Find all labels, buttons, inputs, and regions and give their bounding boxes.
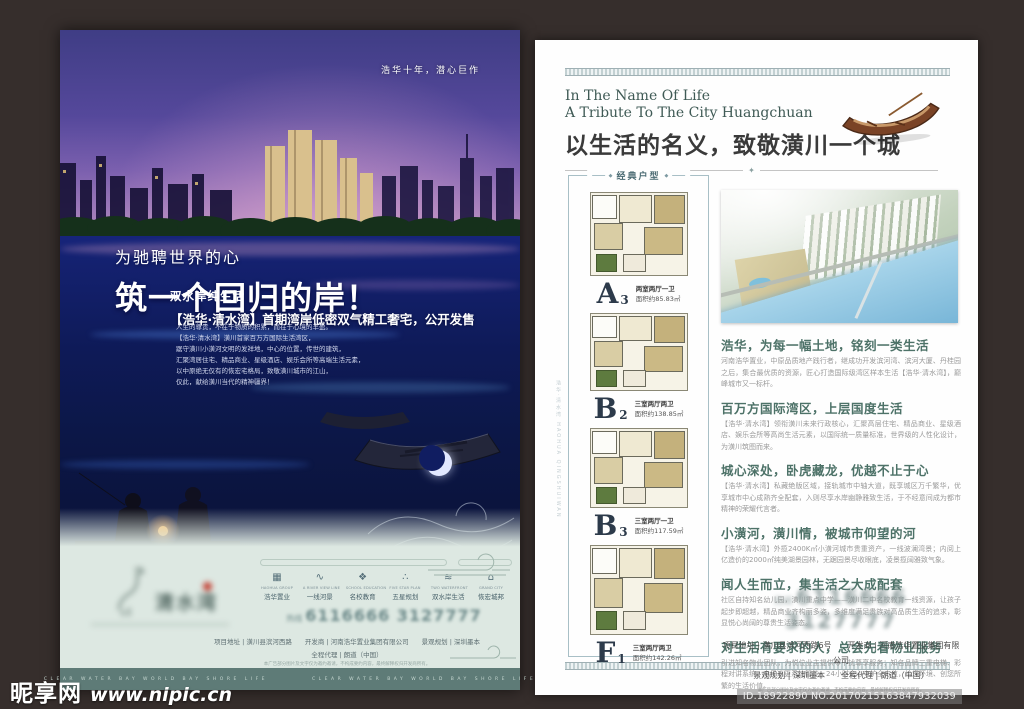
- diamond-icon: ◆: [665, 173, 669, 179]
- plan-letter-sub: 2: [619, 408, 627, 422]
- feature-label-en: GRAND CITY: [474, 585, 508, 590]
- section-heading: 浩华，为每一幅土地，铭刻一类生活: [721, 335, 961, 354]
- plan-room: [644, 462, 682, 489]
- diamond-icon: ◆: [609, 173, 613, 179]
- poster-slogan: 双水岸纯生活: [170, 288, 475, 304]
- plan-room: [623, 611, 646, 630]
- plan-area: 面积约117.59㎡: [635, 527, 684, 535]
- poster-hotline: 热线6116666 3127777: [258, 606, 510, 625]
- poster-left: 浩华十年，潜心巨作 为驰聘世界的心 筑一个回归的岸！ 双水岸纯生活 【浩华·清水…: [60, 30, 520, 690]
- contact-info: 项目地址 | 潢川县滨河西路6号 开发商 | 河南浩华置业集团有限公司 景观规划…: [721, 638, 961, 683]
- section-heading: 城心深处，卧虎藏龙，优越不止于心: [721, 460, 961, 479]
- contact-line: 景观规划 | 深圳墨本 全程代理 | 朗道（中国）: [721, 668, 961, 683]
- plan-meta: 三室两厅一卫 面积约117.59㎡: [635, 516, 684, 537]
- floorplan-drawing: [590, 428, 688, 508]
- plan-letter-sub: 1: [617, 652, 625, 666]
- feature-label-cn: 名校教育: [344, 591, 382, 601]
- plan-room: [644, 583, 682, 613]
- plan-room: [594, 578, 623, 608]
- feature-label-en: TWO WATERFRONT: [431, 585, 465, 590]
- poster-body-text: 人生的尊贵，不在于物质的积累，而在于心境的丰盈。 【浩华·清水湾】潢川首家百万方…: [176, 322, 365, 388]
- crescent-moon: [426, 450, 452, 476]
- floorplan-drawing: [590, 192, 688, 276]
- floorplan-list: A 3 两室两厅一卫 面积约85.83㎡: [569, 176, 708, 672]
- page-hotline: 热线6116666 3127777: [721, 585, 961, 633]
- plan-room: [594, 223, 623, 251]
- plan-room: [654, 195, 685, 225]
- plan-letter-sub: 3: [619, 525, 627, 539]
- plan-room: [592, 195, 617, 220]
- section: 小潢河，潢川情，被城市仰望的河 【浩华·清水湾】外揽2400K㎡小潢河城市贵重资…: [721, 523, 961, 567]
- decorative-border-top: [565, 68, 950, 76]
- stars-icon: ∴: [386, 572, 424, 584]
- feature-label-en: FIVE STAR PLAN: [388, 585, 422, 590]
- section: 百万方国际湾区，上层国度生活 【浩华·清水湾】领衔潢川未来行政核心，汇聚高层住宅…: [721, 398, 961, 454]
- plan-room: [592, 431, 617, 454]
- hotline-prefix: 热线: [286, 614, 302, 623]
- floorplan-panel-header: ◆ 经典户型 ◆: [587, 169, 691, 182]
- plan-room: [592, 548, 617, 574]
- plan-room: [623, 487, 646, 504]
- plan-room: [596, 487, 617, 504]
- header-en-line2: A Tribute To The City Huangchuan: [565, 105, 813, 122]
- plan-room: [619, 431, 652, 458]
- plan-room: [596, 611, 617, 630]
- poster-body-line: 汇聚湾居住宅、精品商业、星级酒店、娱乐会所等高端生活元素，: [176, 355, 365, 366]
- floorplan-drawing: [590, 313, 688, 391]
- header-rule: [592, 175, 605, 176]
- feature-label-en: A RIVER VIEW LINE: [303, 585, 337, 590]
- plan-room: [596, 370, 617, 387]
- feature-label-cn: 双水岸生活: [429, 591, 467, 601]
- watermark-site-url: www.nipic.cn: [90, 684, 232, 706]
- section-heading: 百万方国际湾区，上层国度生活: [721, 398, 961, 417]
- floorplan-label: B 2 三室两厅两卫 面积约138.85㎡: [594, 394, 684, 424]
- plan-letter: A: [597, 280, 619, 308]
- plan-type: 三室两厅一卫: [635, 517, 674, 525]
- brand-logo: 清水湾: [85, 562, 235, 640]
- plan-room: [654, 548, 685, 580]
- plan-room: [619, 195, 652, 223]
- poster-photo: 浩华十年，潜心巨作 为驰聘世界的心 筑一个回归的岸！ 双水岸纯生活 【浩华·清水…: [60, 30, 520, 550]
- plan-meta: 三室两厅两卫 面积约142.26㎡: [633, 643, 682, 664]
- plan-room: [644, 346, 682, 372]
- section: 浩华，为每一幅土地，铭刻一类生活 河南浩华置业，中原品质地产践行者，继成功开发滨…: [721, 335, 961, 391]
- hotline-number: 6116666 3127777: [305, 606, 481, 625]
- section-body: 【浩华·清水湾】领衔潢川未来行政核心，汇聚高层住宅、精品商业、星级酒店、娱乐会所…: [721, 419, 961, 454]
- floorplan-panel-title: 经典户型: [616, 169, 660, 182]
- plan-letter: B: [594, 395, 618, 423]
- plan-letter: F: [596, 639, 616, 667]
- poster-body-line: 踞守潢川小潢河文明的发祥地，中心的位置，传世的建筑，: [176, 344, 365, 355]
- feature-icon-group: ▦ HAOHUA GROUP 浩华置业: [258, 572, 296, 601]
- feature-label-cn: 浩华置业: [258, 591, 296, 601]
- section-body: 【浩华·清水湾】私藏绝版区域，接轨城市中轴大道，既享城区万千繁华，优享城市中心成…: [721, 481, 961, 516]
- plan-type: 两室两厅一卫: [636, 285, 675, 293]
- aerial-rendering-image: [721, 190, 958, 323]
- floorplan-drawing: [590, 545, 688, 635]
- poster-tagline: 浩华十年，潜心巨作: [381, 63, 480, 76]
- footer-ornament: [260, 559, 447, 566]
- poster-body-line: 以中原绝无仅有的恢宏宅格局，致敬潢川城市的江山，: [176, 366, 365, 377]
- city-skyline-illustration: [60, 118, 520, 236]
- feature-icon-group: ∴ FIVE STAR PLAN 五星规划: [386, 572, 424, 601]
- contact-line: 项目地址 | 潢川县滨河西路6号 开发商 | 河南浩华置业集团有限公司: [721, 638, 961, 668]
- cloud-scroll-ornament: [448, 644, 518, 664]
- plan-room: [623, 370, 646, 387]
- section: 城心深处，卧虎藏龙，优越不止于心 【浩华·清水湾】私藏绝版区域，接轨城市中轴大道…: [721, 460, 961, 516]
- feature-icon-group: ∿ A RIVER VIEW LINE 一线河景: [301, 572, 339, 601]
- plan-type: 三室两厅两卫: [633, 644, 672, 652]
- divider-line: [760, 170, 938, 171]
- floorplan-label: B 3 三室两厅一卫 面积约117.59㎡: [594, 511, 684, 541]
- plan-room: [592, 316, 617, 339]
- floorplan-item-b3: B 3 三室两厅一卫 面积约117.59㎡: [590, 428, 688, 541]
- brand-logo-rule: [91, 624, 229, 625]
- floorplan-item-b2: B 2 三室两厅两卫 面积约138.85㎡: [590, 313, 688, 424]
- hotline-number: 6116666 3127777: [785, 585, 907, 633]
- plan-room: [594, 341, 623, 367]
- plan-room: [594, 457, 623, 484]
- band-slogan: CLEAR WATER BAY WORLD BAY SHORE LIFE: [312, 677, 536, 682]
- floorplan-label: F 1 三室两厅两卫 面积约142.26㎡: [596, 638, 682, 668]
- plan-type: 三室两厅两卫: [635, 400, 674, 408]
- wooden-boat-image: [832, 76, 951, 159]
- feature-label-en: SCHOOL EDUCATION: [345, 585, 379, 590]
- floorplan-panel: ◆ 经典户型 ◆ A 3 两室: [568, 175, 709, 657]
- feature-label-en: HAOHUA GROUP: [260, 585, 294, 590]
- feature-label-cn: 恢宏城邦: [472, 591, 510, 601]
- poster-body-line: 【浩华·清水湾】潢川首家百万方国际生活湾区，: [176, 333, 365, 344]
- plan-room: [654, 431, 685, 459]
- site-watermark: 昵享网 www.nipic.cn: [10, 674, 232, 708]
- header-rule: [672, 175, 685, 176]
- plan-room: [644, 227, 682, 255]
- header-en-line1: In The Name Of Life: [565, 88, 813, 105]
- diamond-icon: ✦: [743, 166, 760, 175]
- plan-meta: 三室两厅两卫 面积约138.85㎡: [635, 399, 684, 420]
- floorplan-item-f1: F 1 三室两厅两卫 面积约142.26㎡: [590, 545, 688, 668]
- side-vertical-brand-text: 浩华·清水湾 HAOHUA QINGSHUIWAN: [555, 380, 562, 519]
- watermark-id-badge: ID.18922890 NO.20170215163847932039: [737, 689, 962, 704]
- river-icon: ∿: [301, 572, 339, 584]
- poster-subtitle: 为驰聘世界的心: [115, 244, 379, 268]
- poster-footer: 清水湾 ▦ HAOHUA GROUP 浩华置业 ∿ A RIVER VIEW L…: [60, 550, 520, 668]
- section-heading: 小潢河，潢川情，被城市仰望的河: [721, 523, 961, 542]
- page-right: In The Name Of Life A Tribute To The Cit…: [535, 40, 978, 695]
- cloud-scroll-ornament: [424, 552, 514, 578]
- plan-area: 面积约138.85㎡: [635, 410, 684, 418]
- design-showcase-canvas: 浩华十年，潜心巨作 为驰聘世界的心 筑一个回归的岸！ 双水岸纯生活 【浩华·清水…: [0, 0, 1024, 709]
- education-icon: ❖: [344, 572, 382, 584]
- section-body: 【浩华·清水湾】外揽2400K㎡小潢河城市贵重资产，一线波澜湾景；内阅上亿造价的…: [721, 544, 961, 567]
- watermark-site-name: 昵享网: [10, 674, 82, 708]
- plan-letter-sub: 3: [620, 293, 628, 307]
- crane-bird-icon: [113, 564, 147, 616]
- floorplan-item-a3: A 3 两室两厅一卫 面积约85.83㎡: [590, 192, 688, 309]
- plan-room: [654, 316, 685, 343]
- contact-block: 热线6116666 3127777 项目地址 | 潢川县滨河西路6号 开发商 |…: [721, 585, 961, 693]
- poster-body-line: 人生的尊贵，不在于物质的积累，而在于心境的丰盈。: [176, 322, 365, 333]
- feature-label-cn: 五星规划: [386, 591, 424, 601]
- brand-logo-seal: [203, 582, 212, 591]
- floorplan-label: A 3 两室两厅一卫 面积约85.83㎡: [597, 279, 681, 309]
- plan-meta: 两室两厅一卫 面积约85.83㎡: [636, 284, 681, 305]
- header-english: In The Name Of Life A Tribute To The Cit…: [565, 88, 813, 122]
- plan-room: [623, 254, 646, 272]
- plan-area: 面积约85.83㎡: [636, 295, 681, 303]
- plan-room: [619, 316, 652, 342]
- plan-room: [596, 254, 617, 272]
- brand-logo-text: 清水湾: [155, 588, 218, 615]
- building-icon: ▦: [258, 572, 296, 584]
- plan-letter: B: [594, 512, 618, 540]
- plan-room: [619, 548, 652, 578]
- hotline-prefix: 热线: [774, 597, 792, 607]
- plan-area: 面积约142.26㎡: [633, 654, 682, 662]
- section-body: 河南浩华置业，中原品质地产践行者，继成功开发滨河湾、滨河大厦、丹桂园之后，集合最…: [721, 356, 961, 391]
- feature-icon-group: ❖ SCHOOL EDUCATION 名校教育: [344, 572, 382, 601]
- feature-label-cn: 一线河景: [301, 591, 339, 601]
